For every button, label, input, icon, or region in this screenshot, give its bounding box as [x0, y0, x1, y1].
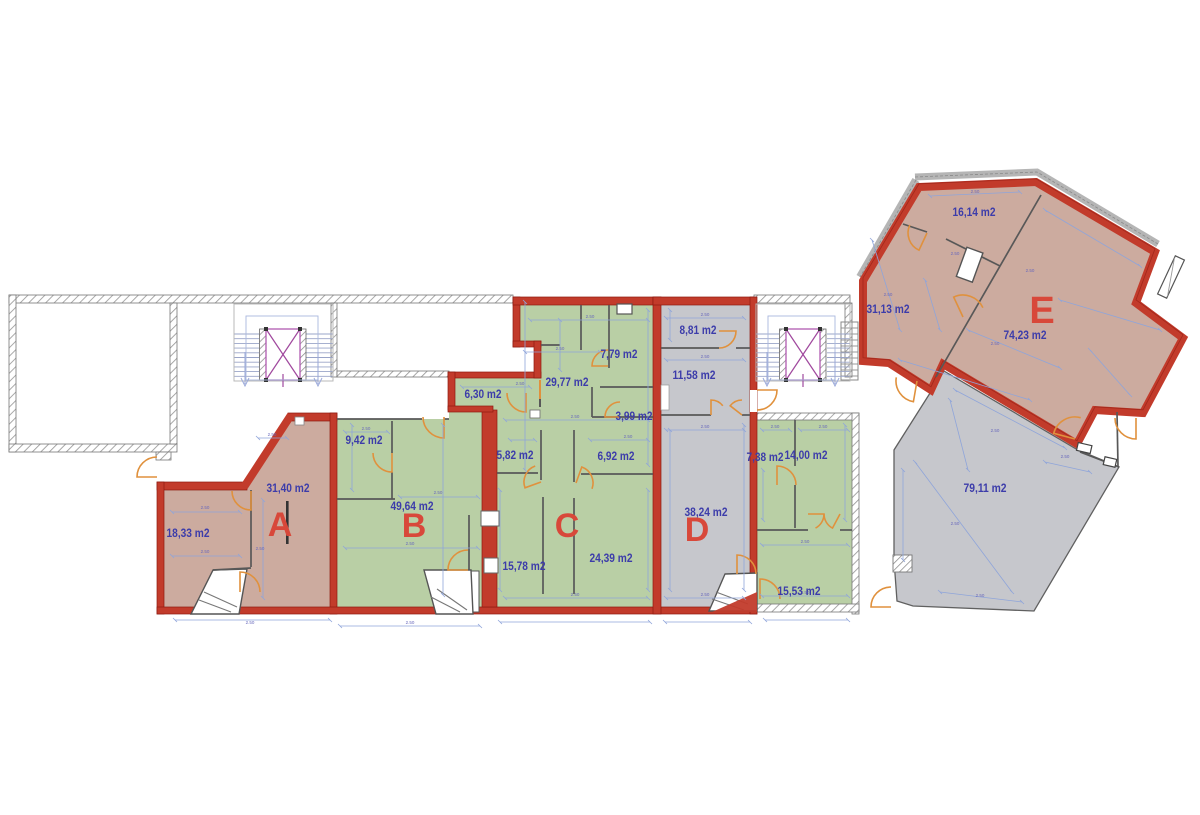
svg-text:2.50: 2.50 — [884, 292, 893, 297]
svg-text:2.50: 2.50 — [624, 434, 633, 439]
svg-text:2.50: 2.50 — [571, 592, 580, 597]
svg-text:2.50: 2.50 — [976, 593, 985, 598]
svg-text:2.50: 2.50 — [516, 381, 525, 386]
svg-text:3,99 m2: 3,99 m2 — [616, 409, 653, 423]
svg-text:2.50: 2.50 — [201, 549, 210, 554]
svg-text:2.50: 2.50 — [201, 505, 210, 510]
svg-text:29,77 m2: 29,77 m2 — [546, 375, 589, 389]
svg-text:79,11 m2: 79,11 m2 — [964, 481, 1007, 495]
svg-text:2.50: 2.50 — [951, 251, 960, 256]
svg-text:6,30 m2: 6,30 m2 — [465, 387, 502, 401]
svg-text:D: D — [685, 511, 710, 549]
svg-text:7,79 m2: 7,79 m2 — [601, 347, 638, 361]
svg-text:2.50: 2.50 — [701, 592, 710, 597]
svg-text:2.50: 2.50 — [406, 620, 415, 625]
svg-text:7,38 m2: 7,38 m2 — [747, 450, 784, 464]
svg-text:2.50: 2.50 — [951, 521, 960, 526]
svg-text:2.50: 2.50 — [556, 346, 565, 351]
svg-text:15,53 m2: 15,53 m2 — [778, 584, 821, 598]
svg-text:2.50: 2.50 — [434, 490, 443, 495]
svg-text:31,13 m2: 31,13 m2 — [867, 302, 910, 316]
svg-text:24,39 m2: 24,39 m2 — [590, 551, 633, 565]
svg-text:2.50: 2.50 — [819, 424, 828, 429]
svg-text:2.50: 2.50 — [991, 428, 1000, 433]
svg-text:2.50: 2.50 — [991, 341, 1000, 346]
svg-text:2.50: 2.50 — [571, 414, 580, 419]
svg-text:9,42 m2: 9,42 m2 — [346, 433, 383, 447]
svg-text:2.50: 2.50 — [256, 546, 265, 551]
svg-text:6,92 m2: 6,92 m2 — [598, 449, 635, 463]
svg-text:2.50: 2.50 — [701, 424, 710, 429]
svg-text:2.50: 2.50 — [1026, 268, 1035, 273]
svg-text:14,00 m2: 14,00 m2 — [785, 448, 828, 462]
svg-text:31,40 m2: 31,40 m2 — [267, 481, 310, 495]
svg-text:2.50: 2.50 — [971, 189, 980, 194]
svg-text:2.50: 2.50 — [771, 424, 780, 429]
svg-text:16,14 m2: 16,14 m2 — [953, 205, 996, 219]
svg-text:2.50: 2.50 — [362, 426, 371, 431]
svg-text:2.50: 2.50 — [586, 314, 595, 319]
svg-text:15,78 m2: 15,78 m2 — [503, 559, 546, 573]
svg-text:C: C — [555, 507, 580, 545]
svg-text:5,82 m2: 5,82 m2 — [497, 448, 534, 462]
svg-text:2.50: 2.50 — [701, 354, 710, 359]
svg-text:2.50: 2.50 — [268, 432, 277, 437]
svg-text:E: E — [1029, 290, 1054, 332]
svg-text:2.50: 2.50 — [801, 539, 810, 544]
svg-text:2.50: 2.50 — [1061, 454, 1070, 459]
svg-text:2.50: 2.50 — [701, 312, 710, 317]
svg-text:B: B — [402, 507, 427, 545]
svg-text:2.50: 2.50 — [246, 620, 255, 625]
svg-text:18,33 m2: 18,33 m2 — [167, 526, 210, 540]
svg-text:11,58 m2: 11,58 m2 — [673, 368, 716, 382]
svg-text:8,81 m2: 8,81 m2 — [680, 323, 717, 337]
svg-text:A: A — [268, 506, 293, 544]
